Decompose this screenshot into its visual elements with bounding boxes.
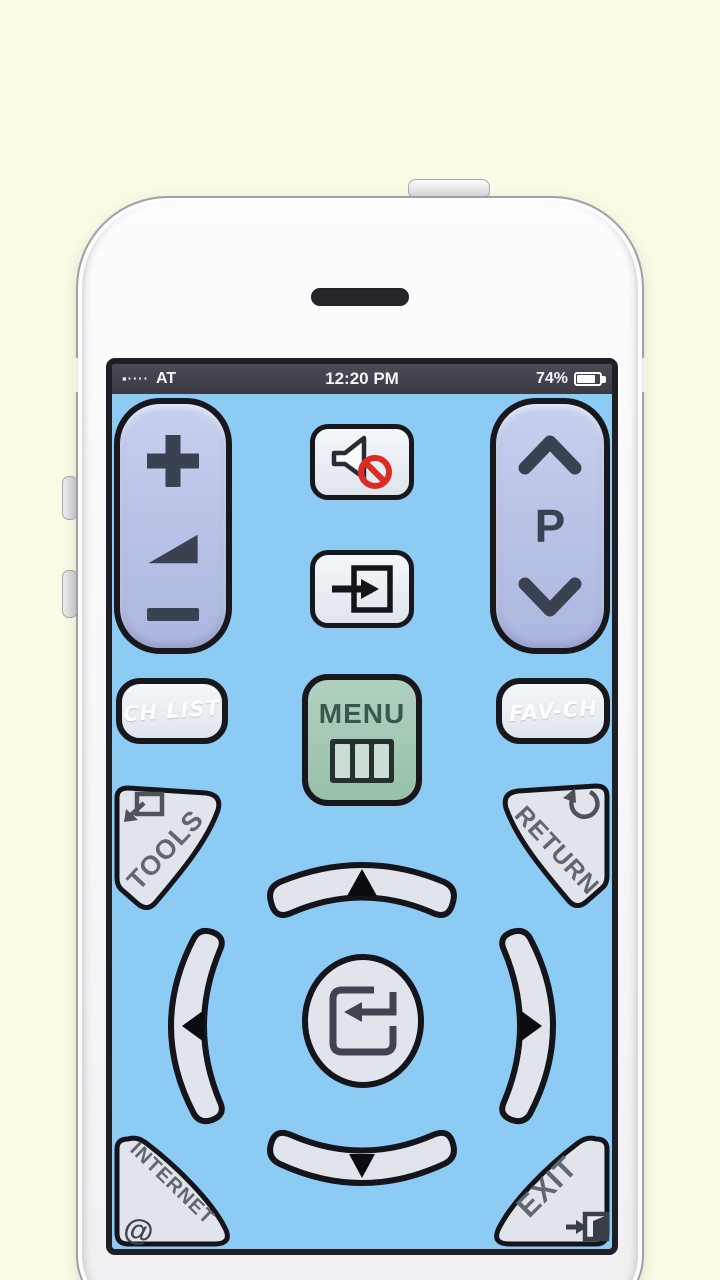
status-left: ▪···· AT bbox=[122, 370, 282, 388]
dpad-down-button[interactable] bbox=[266, 1114, 458, 1198]
phone-screen: ▪···· AT 12:20 PM 74% bbox=[106, 358, 618, 1255]
channel-down-chevron-icon[interactable] bbox=[517, 578, 583, 622]
exit-button[interactable]: EXIT bbox=[484, 1134, 612, 1249]
dpad-left-button[interactable] bbox=[152, 926, 252, 1126]
channel-rocker[interactable]: P bbox=[490, 398, 610, 654]
status-bar: ▪···· AT 12:20 PM 74% bbox=[112, 364, 612, 394]
menu-button[interactable]: MENU bbox=[302, 674, 422, 806]
speaker-mute-icon bbox=[328, 434, 396, 490]
internet-button[interactable]: INTERNET @ bbox=[112, 1134, 240, 1249]
menu-grid-icon bbox=[330, 739, 394, 783]
channel-p-label: P bbox=[535, 503, 566, 549]
source-button[interactable] bbox=[310, 550, 414, 628]
input-source-icon bbox=[328, 561, 396, 617]
fav-ch-label: FAV-CH bbox=[508, 696, 598, 726]
ch-list-label: CH LIST bbox=[122, 696, 221, 727]
signal-strength-icon: ▪···· bbox=[122, 371, 149, 386]
tools-button[interactable]: TOOLS bbox=[112, 780, 232, 912]
carrier-label: AT bbox=[156, 370, 176, 388]
volume-wedge-icon bbox=[144, 531, 202, 567]
screenshot-root: ▪···· AT 12:20 PM 74% bbox=[0, 0, 720, 1280]
volume-minus-icon[interactable] bbox=[145, 606, 201, 622]
antenna-band-right bbox=[641, 358, 646, 392]
dpad-right-button[interactable] bbox=[472, 926, 572, 1126]
channel-up-chevron-icon[interactable] bbox=[517, 430, 583, 474]
remote-app: P bbox=[112, 394, 612, 1249]
mute-button[interactable] bbox=[310, 424, 414, 500]
dpad-up-button[interactable] bbox=[266, 852, 458, 932]
fav-ch-button[interactable]: FAV-CH bbox=[496, 678, 610, 744]
status-right: 74% bbox=[442, 370, 602, 388]
volume-rocker[interactable] bbox=[114, 398, 232, 654]
enter-button[interactable] bbox=[300, 952, 426, 1090]
return-button[interactable]: RETURN bbox=[494, 778, 612, 914]
earpiece-speaker bbox=[311, 288, 409, 306]
menu-label: MENU bbox=[319, 698, 405, 730]
ch-list-button[interactable]: CH LIST bbox=[116, 678, 228, 744]
clock: 12:20 PM bbox=[282, 369, 442, 389]
battery-icon bbox=[574, 372, 602, 386]
volume-plus-icon[interactable] bbox=[141, 430, 205, 492]
phone-body: ▪···· AT 12:20 PM 74% bbox=[76, 196, 644, 1280]
antenna-band-left bbox=[74, 358, 79, 392]
battery-percent: 74% bbox=[536, 370, 568, 388]
